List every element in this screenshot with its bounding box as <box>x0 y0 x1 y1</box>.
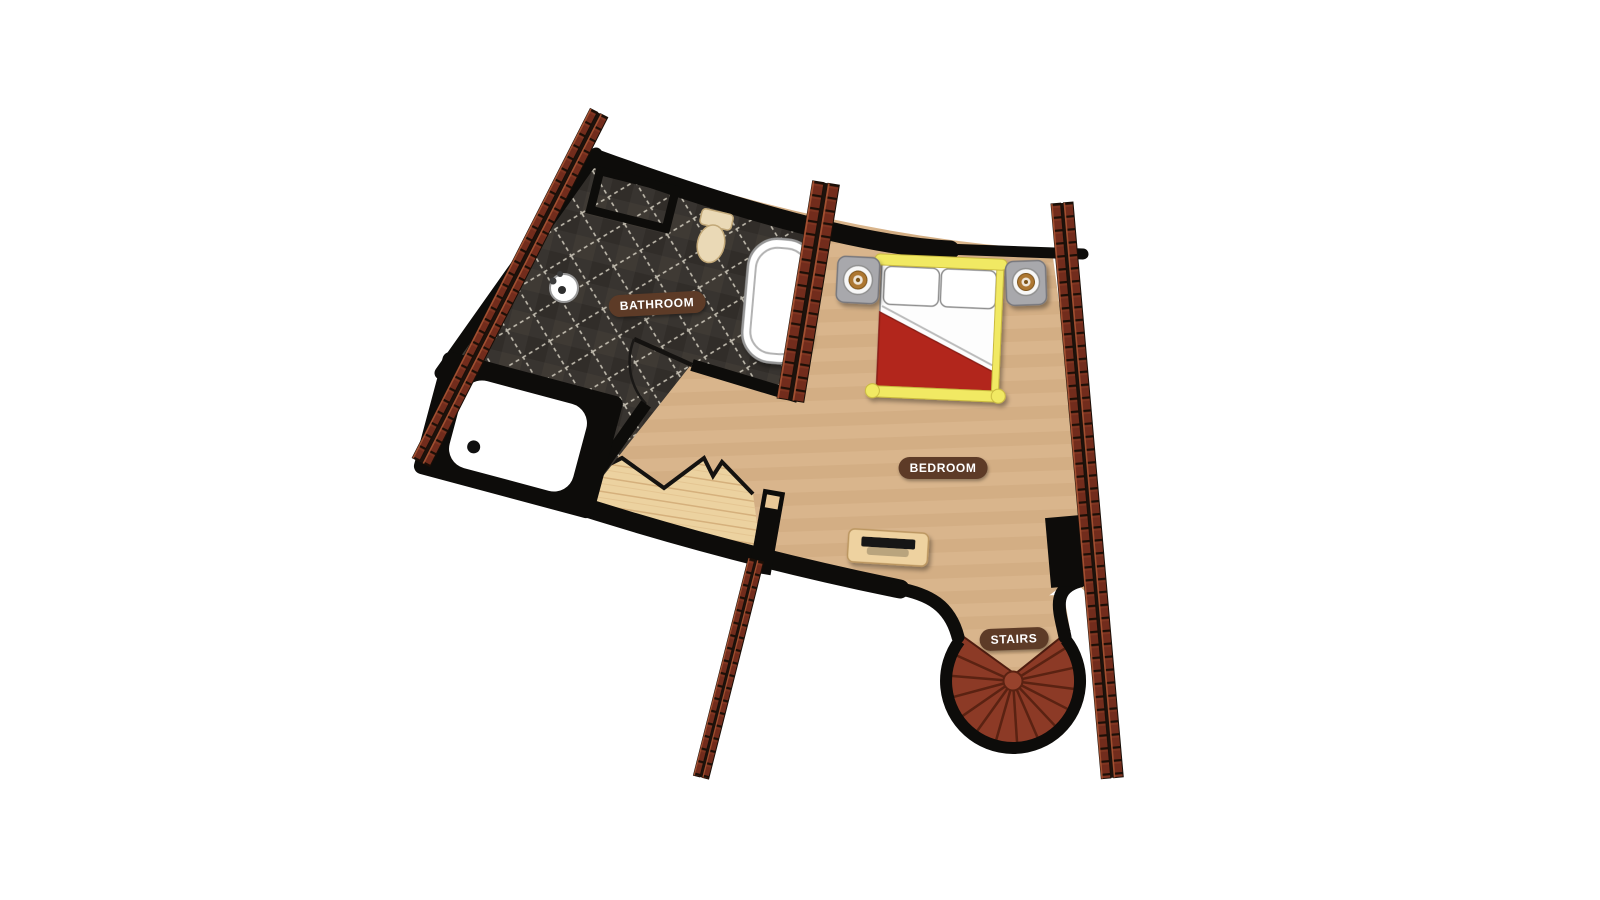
sink-drain <box>558 286 566 294</box>
lamp <box>1012 268 1040 296</box>
floorplan-page: BATHROOM BEDROOM STAIRS <box>0 0 1600 900</box>
sink-tap <box>557 271 563 277</box>
wall-stairs-fillet-right <box>1059 581 1080 637</box>
lamp <box>843 265 873 295</box>
timber-beam-bottom <box>693 558 763 779</box>
stairs-label: STAIRS <box>979 627 1048 651</box>
bed-knob <box>991 389 1006 404</box>
bed-pillow <box>940 269 997 309</box>
floorplan-canvas <box>0 0 1600 900</box>
stairs-center-post <box>1004 672 1023 691</box>
nightstand-left <box>836 256 880 304</box>
sink-tap <box>550 278 557 285</box>
nightstand-right <box>1005 260 1047 305</box>
newel-post-mortise <box>765 494 780 509</box>
bedroom-label: BEDROOM <box>899 457 988 479</box>
double-bed <box>865 254 1011 404</box>
bed-pillow <box>883 266 940 306</box>
bench <box>847 529 929 567</box>
bed-knob <box>865 383 880 398</box>
